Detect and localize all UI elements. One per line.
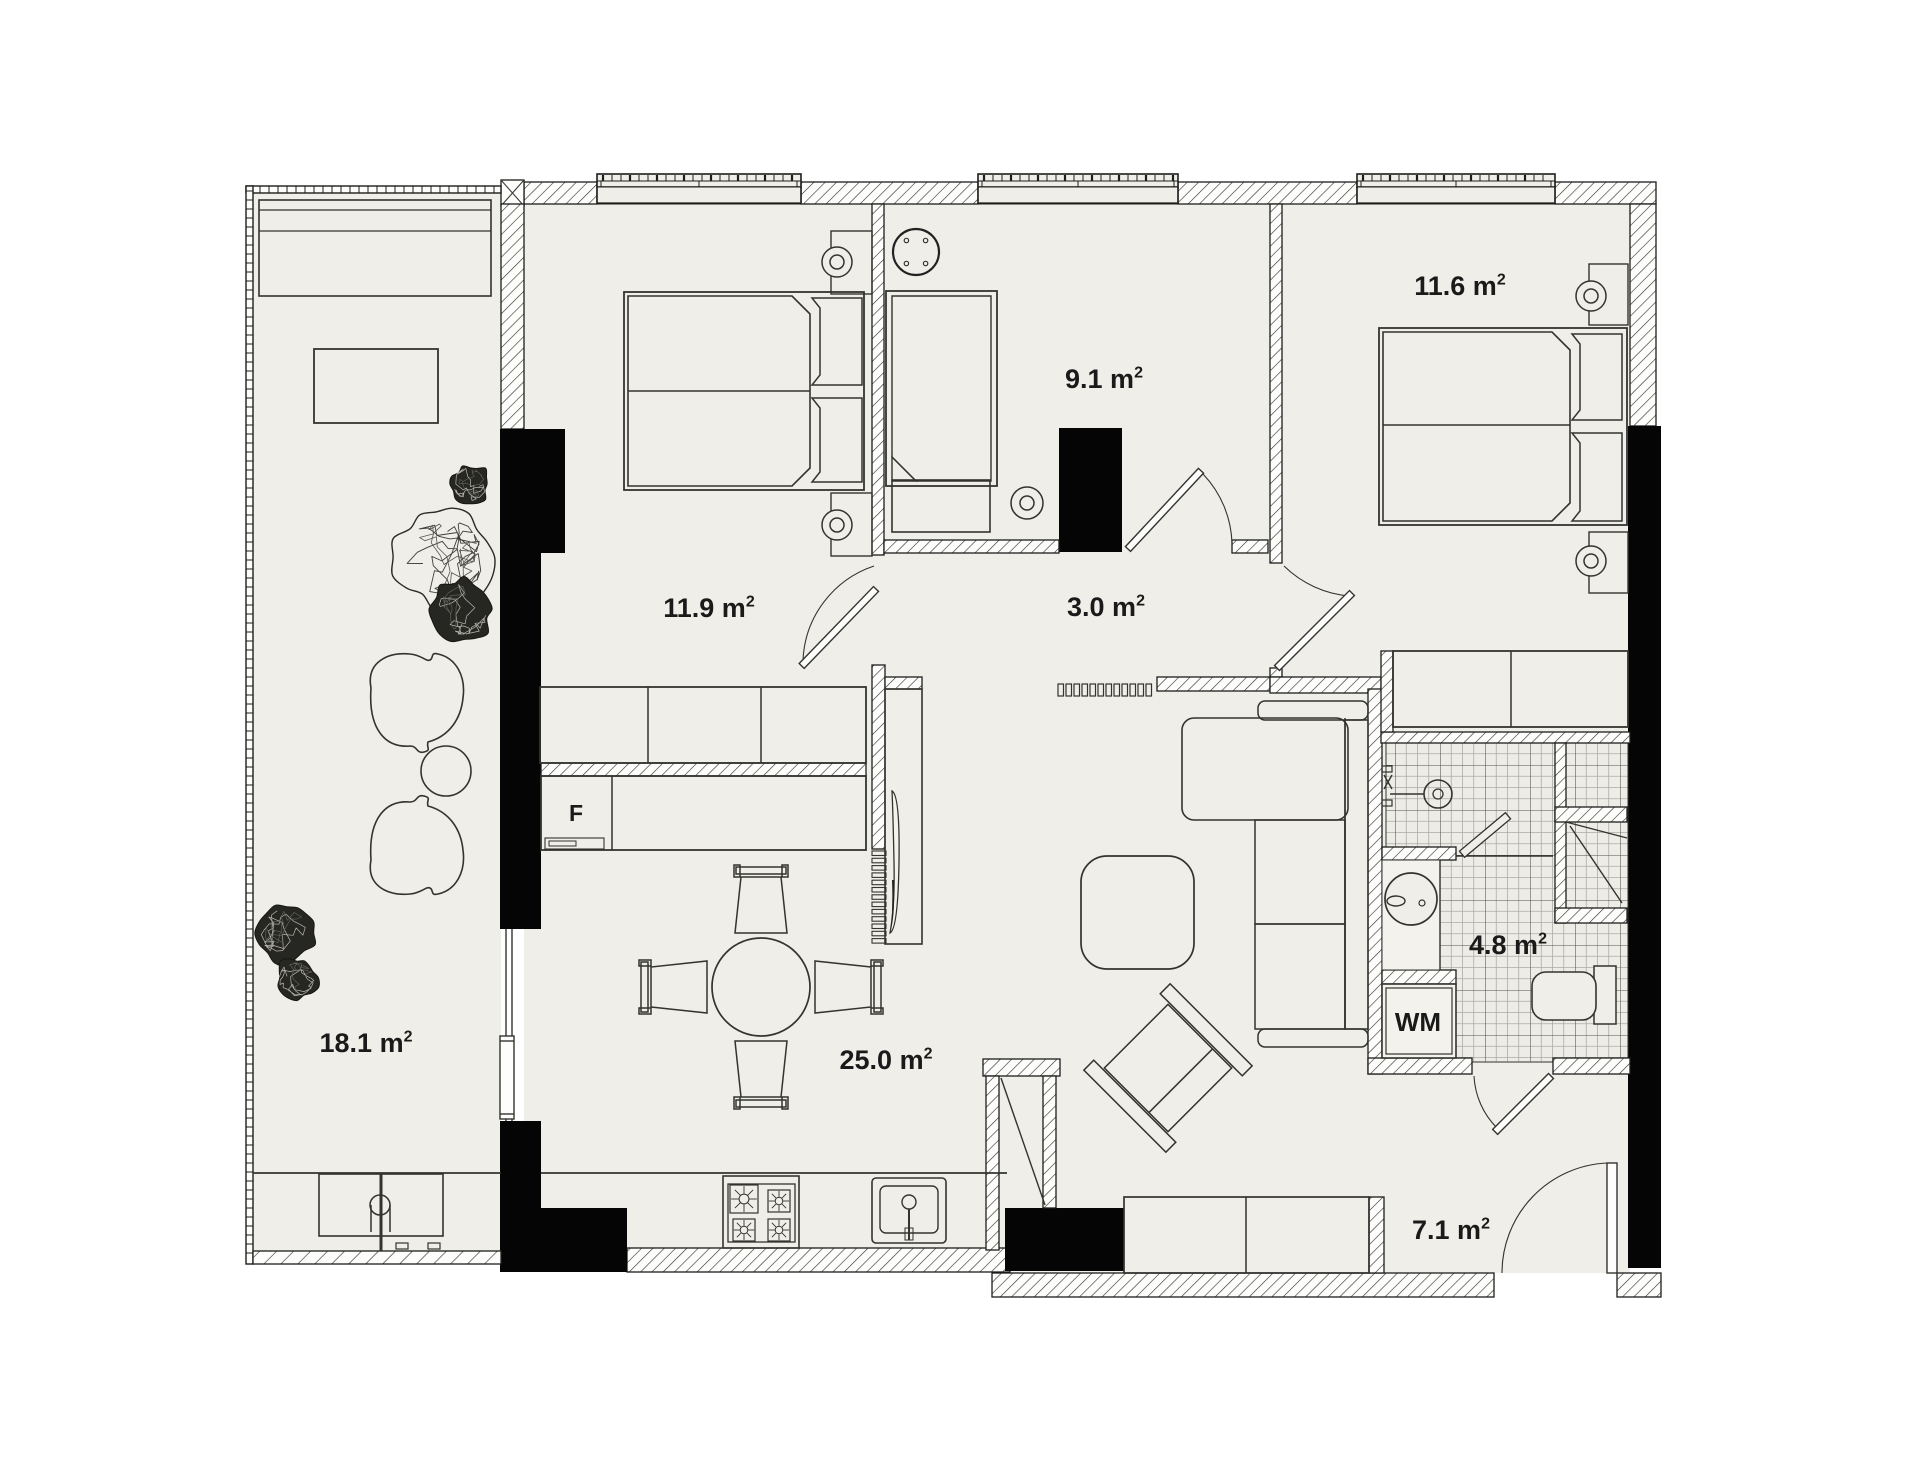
svg-text:18.1 m2: 18.1 m2 <box>320 1028 413 1058</box>
svg-text:F: F <box>569 800 583 826</box>
svg-text:4.8 m2: 4.8 m2 <box>1469 930 1547 960</box>
svg-text:WM: WM <box>1395 1007 1441 1037</box>
svg-text:3.0 m2: 3.0 m2 <box>1067 592 1145 622</box>
svg-text:9.1 m2: 9.1 m2 <box>1065 364 1143 394</box>
svg-text:11.6 m2: 11.6 m2 <box>1414 271 1506 301</box>
svg-text:7.1 m2: 7.1 m2 <box>1412 1215 1490 1245</box>
svg-text:11.9 m2: 11.9 m2 <box>663 593 755 623</box>
svg-text:25.0 m2: 25.0 m2 <box>840 1045 933 1075</box>
